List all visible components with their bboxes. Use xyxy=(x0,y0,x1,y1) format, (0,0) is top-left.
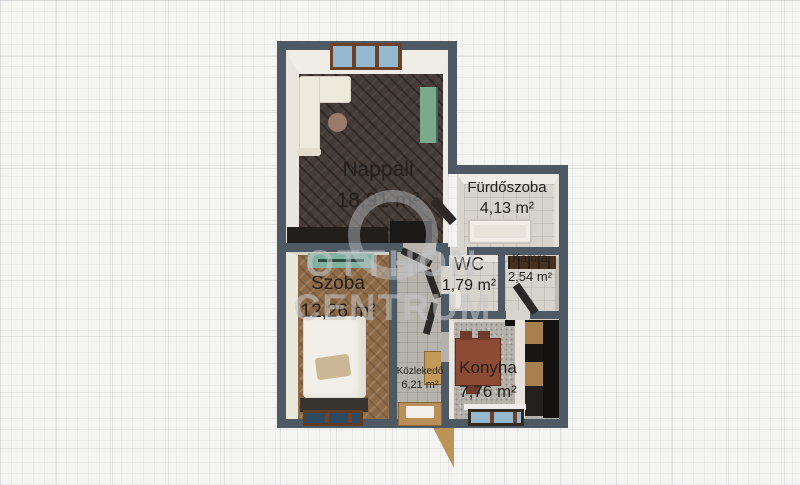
entry-door-panel xyxy=(406,406,434,418)
room-area: 4,13 m² xyxy=(453,200,561,218)
room-area: 7,76 m² xyxy=(446,382,530,402)
room-name: Konyha xyxy=(446,358,530,378)
room-label-konyha: Konyha 7,76 m² xyxy=(446,358,530,402)
window-nappali xyxy=(330,43,402,70)
sofa-seat-left xyxy=(299,76,320,154)
entry-door-swing xyxy=(428,428,454,468)
chair xyxy=(478,331,490,340)
kitchen-fridge-column xyxy=(543,320,559,418)
watermark-line1: OTTHON xyxy=(295,243,490,285)
sideboard-teal xyxy=(420,87,438,143)
room-name: Nappali xyxy=(303,158,453,182)
room-name: Fürdőszoba xyxy=(453,179,561,196)
door-opening-kamra xyxy=(506,311,530,319)
side-table xyxy=(328,113,347,132)
window-szoba xyxy=(303,410,363,426)
bathtub xyxy=(468,219,532,244)
room-area: 6,21 m² xyxy=(392,379,448,391)
bed-blanket xyxy=(315,354,352,381)
wall-exterior-left xyxy=(277,41,286,428)
room-name: Kamra xyxy=(500,251,560,265)
room-name: Közlekedő xyxy=(392,366,448,377)
room-label-furdoszoba: Fürdőszoba 4,13 m² xyxy=(453,179,561,218)
room-label-kozlekedo: Közlekedő 6,21 m² xyxy=(392,366,448,391)
window-konyha xyxy=(468,409,524,426)
kitchen-cabinet-wood-upper xyxy=(525,322,543,344)
room-area: 2,54 m² xyxy=(500,269,560,284)
wall-wing-top xyxy=(448,165,568,174)
grid-background: Nappali 18,91 m² Fürdőszoba 4,13 m² WC 1… xyxy=(0,0,800,485)
sofa-armrest xyxy=(297,148,321,156)
watermark-line2: CENTRUM xyxy=(293,287,493,329)
room-label-kamra: Kamra 2,54 m² xyxy=(500,251,560,284)
wall-nappali-right xyxy=(448,41,457,174)
chair xyxy=(460,331,472,340)
